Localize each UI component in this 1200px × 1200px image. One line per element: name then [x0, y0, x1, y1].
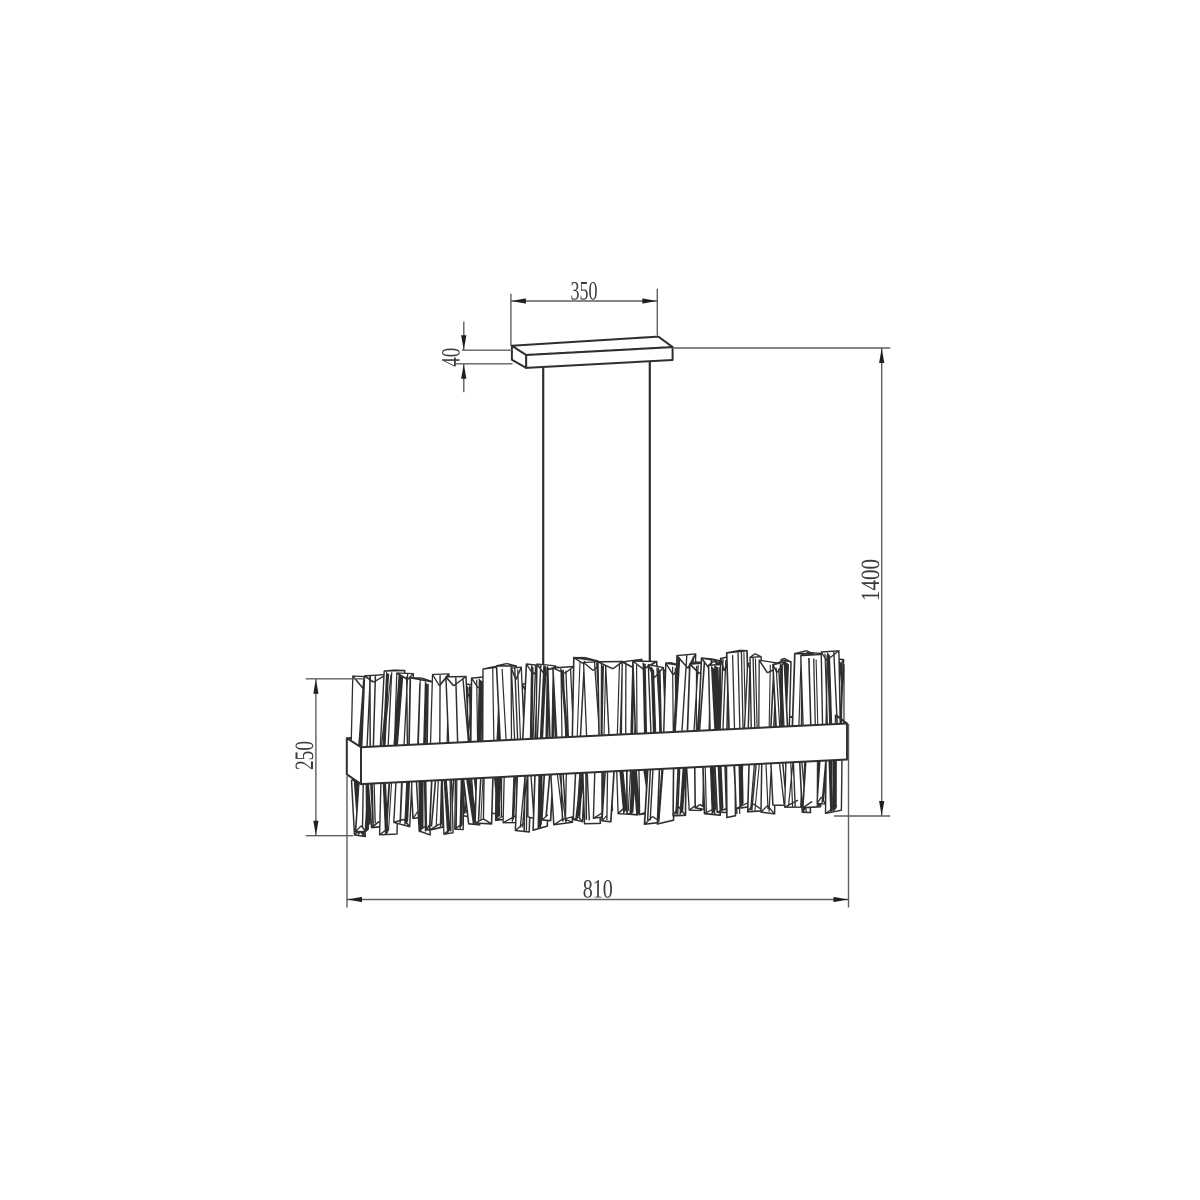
- svg-text:810: 810: [583, 875, 613, 904]
- svg-text:40: 40: [437, 348, 466, 367]
- svg-text:250: 250: [290, 741, 319, 770]
- svg-text:350: 350: [571, 277, 598, 306]
- svg-text:1400: 1400: [856, 559, 885, 601]
